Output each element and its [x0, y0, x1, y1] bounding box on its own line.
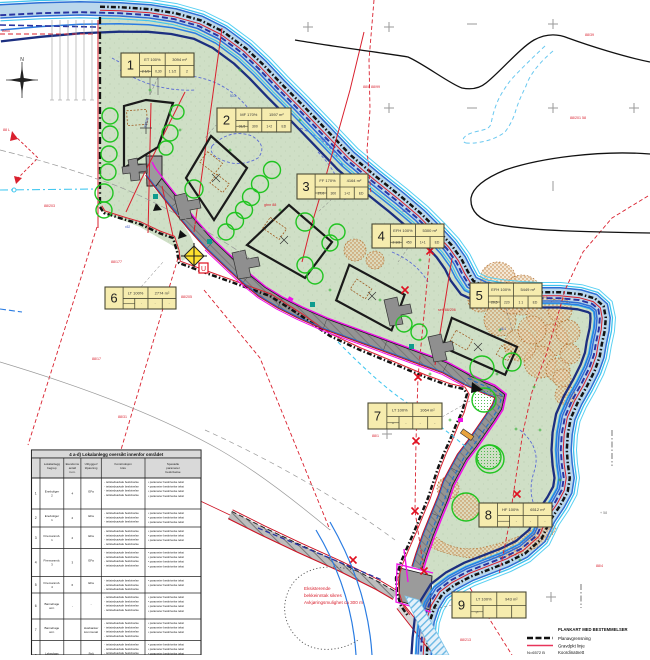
svg-text:begrep: begrep — [47, 466, 57, 470]
svg-text:- tettstedsavtale beskrivelse: - tettstedsavtale beskrivelse — [104, 542, 139, 546]
svg-text:48.2: 48.2 — [402, 209, 408, 213]
svg-text:31,5: 31,5 — [239, 125, 246, 129]
svg-text:• parameter beskrivelse tekst: • parameter beskrivelse tekst — [148, 551, 184, 555]
svg-text:88/177: 88/177 — [111, 260, 122, 264]
svg-text:FF 170%: FF 170% — [319, 178, 336, 183]
svg-text:2: 2 — [223, 113, 230, 128]
svg-text:EFa: EFa — [88, 490, 94, 494]
svg-text:·: · — [503, 520, 504, 524]
svg-text:- tettstedsavtale beskrivelse: - tettstedsavtale beskrivelse — [104, 493, 139, 497]
svg-text:3: 3 — [302, 179, 309, 194]
svg-text:1+2: 1+2 — [344, 192, 350, 196]
svg-text:x52: x52 — [125, 225, 130, 229]
svg-text:• parameter beskrivelse tekst: • parameter beskrivelse tekst — [148, 494, 184, 498]
svg-text:• parameter beskrivelse tekst: • parameter beskrivelse tekst — [148, 621, 184, 625]
svg-text:300: 300 — [331, 192, 337, 196]
svg-text:ED: ED — [533, 301, 538, 305]
svg-text:3: 3 — [35, 536, 37, 540]
svg-text:• parameter beskrivelse tekst: • parameter beskrivelse tekst — [148, 529, 184, 533]
svg-text:-: - — [420, 421, 421, 425]
svg-text:1 1/2: 1 1/2 — [169, 70, 177, 74]
svg-text:omr.: omr. — [49, 630, 55, 634]
svg-text:EFa: EFa — [88, 581, 94, 585]
svg-text:88/4: 88/4 — [596, 564, 603, 568]
svg-text:• parameter beskrivelse tekst: • parameter beskrivelse tekst — [148, 630, 184, 634]
svg-text:-: - — [530, 520, 531, 524]
svg-text:MF 170%: MF 170% — [240, 112, 258, 117]
svg-text:50.2: 50.2 — [230, 94, 236, 98]
svg-text:27,0: 27,0 — [318, 192, 325, 196]
svg-text:4: 4 — [35, 561, 37, 565]
svg-text:-: - — [72, 604, 73, 608]
svg-text:2774 m²: 2774 m² — [155, 290, 170, 295]
svg-text:EFa: EFa — [88, 514, 94, 518]
svg-text:beskrivelse: beskrivelse — [165, 470, 180, 474]
svg-text:HF 100%: HF 100% — [502, 507, 519, 512]
svg-text:Felt: Felt — [89, 652, 94, 656]
svg-text:m.m.: m.m. — [69, 470, 76, 474]
svg-text:• parameter beskrivelse tekst: • parameter beskrivelse tekst — [148, 643, 184, 647]
svg-text:+ 58: + 58 — [600, 511, 607, 515]
svg-text:N=6572 B: N=6572 B — [527, 650, 545, 655]
svg-text:2 1/3: 2 1/3 — [392, 241, 400, 245]
svg-text:- tettstedsavtale beskrivelse: - tettstedsavtale beskrivelse — [104, 587, 139, 591]
svg-text:ED: ED — [435, 241, 440, 245]
svg-text:Gravdpkt linje: Gravdpkt linje — [558, 644, 585, 649]
svg-text:88/8 88/99: 88/8 88/99 — [363, 85, 380, 89]
svg-text:• parameter beskrivelse tekst: • parameter beskrivelse tekst — [148, 560, 184, 564]
svg-text:• parameter beskrivelse tekst: • parameter beskrivelse tekst — [148, 600, 184, 604]
svg-text:• parameter beskrivelse tekst: • parameter beskrivelse tekst — [148, 579, 184, 583]
svg-text:bekkeinntak sikres: bekkeinntak sikres — [304, 593, 342, 598]
svg-text:krav: krav — [120, 466, 126, 470]
svg-text:Lekeplass: Lekeplass — [45, 652, 59, 656]
svg-text:1597 m²: 1597 m² — [269, 112, 284, 117]
svg-text:0,30: 0,30 — [155, 70, 162, 74]
svg-text:ED: ED — [281, 125, 286, 129]
svg-text:1 1: 1 1 — [518, 301, 523, 305]
svg-text:EFH 100%: EFH 100% — [491, 287, 511, 292]
svg-text:1+1: 1+1 — [420, 241, 426, 245]
svg-text:88/203: 88/203 — [44, 204, 55, 208]
svg-text:tilpasning: tilpasning — [85, 466, 98, 470]
svg-text:• parameter beskrivelse tekst: • parameter beskrivelse tekst — [148, 511, 184, 515]
svg-text:-: - — [405, 421, 406, 425]
svg-text:8: 8 — [485, 508, 492, 523]
svg-text:220: 220 — [504, 301, 510, 305]
svg-text:5449 m²: 5449 m² — [520, 287, 535, 292]
svg-text:• parameter beskrivelse tekst: • parameter beskrivelse tekst — [148, 489, 184, 493]
svg-text:• parameter beskrivelse tekst: • parameter beskrivelse tekst — [148, 564, 184, 568]
svg-text:• parameter beskrivelse tekst: • parameter beskrivelse tekst — [148, 595, 184, 599]
svg-text:88/39: 88/39 — [585, 33, 594, 37]
svg-text:3094 m²: 3094 m² — [172, 57, 187, 62]
svg-text:4: 4 — [378, 229, 385, 244]
svg-text:PLANKART MED BESTEMMELSER: PLANKART MED BESTEMMELSER — [558, 627, 628, 632]
svg-text:4 a-d) Lokalanlegg oversikt in: 4 a-d) Lokalanlegg oversikt innenfor omr… — [69, 452, 163, 457]
svg-text:5: 5 — [476, 288, 483, 303]
svg-text:• parameter beskrivelse tekst: • parameter beskrivelse tekst — [148, 583, 184, 587]
svg-text:• parameter beskrivelse tekst: • parameter beskrivelse tekst — [148, 520, 184, 524]
svg-text:- tettstedsavtale beskrivelse: - tettstedsavtale beskrivelse — [104, 634, 139, 638]
svg-text:sett 88/206: sett 88/206 — [438, 308, 456, 312]
svg-text:20,5: 20,5 — [491, 301, 498, 305]
svg-text:·: · — [155, 302, 156, 306]
svg-text:Avkjøringsmulighet ca 300 m: Avkjøringsmulighet ca 300 m — [304, 600, 363, 605]
svg-text:• parameter beskrivelse tekst: • parameter beskrivelse tekst — [148, 626, 184, 630]
svg-text:6512 m²: 6512 m² — [530, 507, 545, 512]
svg-text:943 m²: 943 m² — [505, 596, 518, 601]
svg-text:N: N — [20, 57, 24, 63]
svg-text:U: U — [201, 266, 206, 273]
svg-text:- tettstedsavtale beskrivelse: - tettstedsavtale beskrivelse — [104, 608, 139, 612]
svg-text:88/31: 88/31 — [118, 415, 127, 419]
svg-text:• parameter beskrivelse tekst: • parameter beskrivelse tekst — [148, 516, 184, 520]
svg-text:EFa: EFa — [88, 534, 94, 538]
svg-text:-: - — [516, 520, 517, 524]
svg-text:4164 m²: 4164 m² — [347, 178, 362, 183]
svg-text:• parameter beskrivelse tekst: • parameter beskrivelse tekst — [148, 604, 184, 608]
svg-text:• parameter beskrivelse tekst: • parameter beskrivelse tekst — [148, 538, 184, 542]
svg-text:Planavgrensning: Planavgrensning — [558, 636, 591, 641]
svg-text:49.8: 49.8 — [320, 137, 326, 141]
svg-text:300: 300 — [252, 125, 258, 129]
svg-text:5300 m²: 5300 m² — [422, 228, 437, 233]
svg-text:LT 100%: LT 100% — [476, 596, 492, 601]
svg-text:Koordinatnett: Koordinatnett — [558, 650, 585, 655]
svg-text:Eksisterende: Eksisterende — [304, 586, 331, 591]
svg-text:1+2: 1+2 — [266, 125, 272, 129]
svg-text:-: - — [434, 421, 435, 425]
svg-text:+: + — [392, 421, 394, 425]
svg-text:• parameter beskrivelse tekst: • parameter beskrivelse tekst — [148, 480, 184, 484]
svg-text:Bekk: Bekk — [2, 29, 10, 33]
svg-text:·: · — [128, 302, 129, 306]
svg-text:-/-: -/- — [475, 610, 478, 614]
svg-text:• parameter beskrivelse tekst: • parameter beskrivelse tekst — [148, 485, 184, 489]
svg-text:46.1: 46.1 — [500, 327, 506, 331]
svg-text:EFH 100%: EFH 100% — [393, 228, 413, 233]
svg-text:- tettstedsavtale beskrivelse: - tettstedsavtale beskrivelse — [104, 563, 139, 567]
svg-text:1064 m²: 1064 m² — [420, 407, 435, 412]
svg-text:-: - — [91, 602, 92, 606]
svg-text:LT 100%: LT 100% — [392, 407, 408, 412]
svg-text:88/17: 88/17 — [92, 357, 101, 361]
svg-text:• parameter beskrivelse tekst: • parameter beskrivelse tekst — [148, 647, 184, 651]
svg-text:88/1: 88/1 — [372, 434, 379, 438]
svg-text:·: · — [141, 302, 142, 306]
svg-text:88/213: 88/213 — [460, 638, 471, 642]
svg-text:EFa: EFa — [88, 559, 94, 563]
svg-text:• parameter beskrivelse tekst: • parameter beskrivelse tekst — [148, 534, 184, 538]
svg-text:• parameter beskrivelse tekst: • parameter beskrivelse tekst — [148, 555, 184, 559]
svg-text:450: 450 — [406, 241, 412, 245]
svg-text:88/201 58: 88/201 58 — [570, 116, 586, 120]
svg-text:ED: ED — [359, 192, 364, 196]
svg-text:- tettstedsavtale beskrivelse: - tettstedsavtale beskrivelse — [104, 520, 139, 524]
svg-text:7: 7 — [374, 409, 381, 424]
svg-text:2: 2 — [35, 516, 37, 520]
svg-text:gbnr 88: gbnr 88 — [264, 203, 276, 207]
svg-text:1: 1 — [35, 492, 37, 496]
svg-text:6: 6 — [35, 604, 37, 608]
svg-text:• parameter beskrivelse tekst: • parameter beskrivelse tekst — [148, 609, 184, 613]
svg-text:6: 6 — [110, 291, 117, 306]
svg-text:omr.: omr. — [49, 606, 55, 610]
svg-text:2: 2 — [186, 70, 188, 74]
svg-text:kommunal: kommunal — [84, 630, 98, 634]
svg-text:88/205: 88/205 — [181, 295, 192, 299]
svg-text:5: 5 — [35, 583, 37, 587]
svg-text:-: - — [544, 520, 545, 524]
svg-text:1: 1 — [127, 58, 134, 73]
svg-text:9: 9 — [458, 598, 465, 613]
svg-text:7: 7 — [35, 628, 37, 632]
svg-text:ET 100%: ET 100% — [144, 57, 161, 62]
svg-text:LT 100%: LT 100% — [128, 290, 144, 295]
svg-text:88 L: 88 L — [3, 128, 10, 132]
svg-text:·: · — [169, 302, 170, 306]
svg-text:2 1/3: 2 1/3 — [142, 70, 150, 74]
